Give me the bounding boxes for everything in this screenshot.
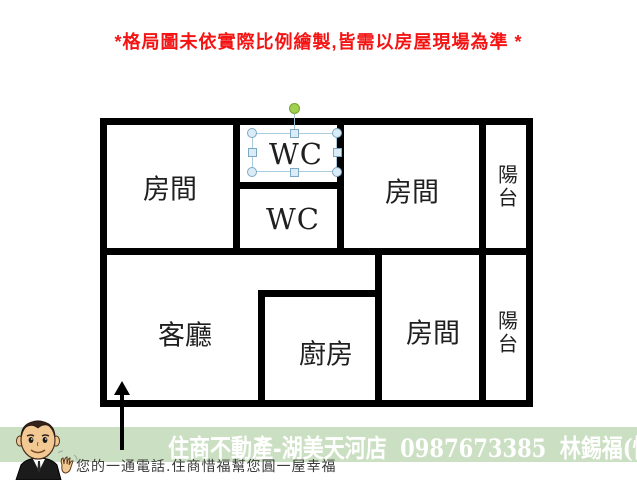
- agent-avatar: [0, 415, 82, 480]
- room-label-bedroom-bottom-right[interactable]: 房間: [406, 312, 460, 351]
- banner-tagline: 您的一通電話.住商惜福幫您圓一屋幸福: [76, 456, 336, 476]
- disclaimer-text: *格局圖未依實際比例繪製,皆需以房屋現場為準 *: [0, 28, 637, 54]
- banner-phone-number: 0987673385: [400, 434, 546, 463]
- selection-box[interactable]: [252, 133, 337, 172]
- resize-handle-nw[interactable]: [247, 128, 257, 138]
- resize-handle-ne[interactable]: [332, 128, 342, 138]
- room-label-kitchen[interactable]: 廚房: [299, 333, 353, 372]
- wall-kitchen-left: [258, 290, 265, 407]
- resize-handle-n[interactable]: [290, 129, 299, 138]
- room-label-bedroom-top-right[interactable]: 房間: [385, 171, 439, 210]
- resize-handle-w[interactable]: [248, 148, 257, 157]
- room-label-bedroom-top-left[interactable]: 房間: [143, 168, 197, 207]
- resize-handle-se[interactable]: [332, 167, 342, 177]
- waving-hand-icon: [58, 451, 77, 473]
- resize-handle-sw[interactable]: [247, 167, 257, 177]
- room-label-wc-bottom[interactable]: WC: [266, 202, 320, 236]
- entrance-arrow-line: [120, 392, 124, 450]
- resize-handle-e[interactable]: [333, 148, 342, 157]
- room-label-balcony-top[interactable]: 陽台: [493, 164, 522, 210]
- wall-kitchen-bedroomBR: [375, 248, 382, 407]
- banner-agent-name: 林錫福(惜福): [560, 434, 637, 463]
- wall-balcony-column: [479, 118, 486, 407]
- wall-between-wcs: [233, 182, 344, 189]
- room-label-balcony-bottom[interactable]: 陽台: [493, 310, 522, 356]
- resize-handle-s[interactable]: [290, 168, 299, 177]
- rotate-handle[interactable]: [289, 103, 300, 114]
- entrance-arrow-head: [114, 381, 130, 395]
- wall-kitchen-top: [258, 290, 382, 297]
- wall-main-divider: [100, 248, 533, 255]
- screenshot-stage: *格局圖未依實際比例繪製,皆需以房屋現場為準 * 房間 WC 房間 陽台 WC …: [0, 0, 637, 480]
- room-label-living-room[interactable]: 客廳: [158, 314, 212, 353]
